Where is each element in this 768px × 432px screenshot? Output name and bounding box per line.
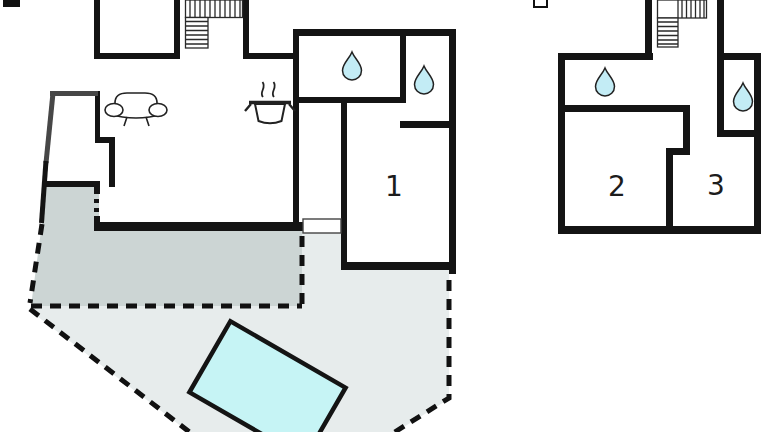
floorplan-canvas: 1 2 3	[0, 0, 768, 432]
pot-body	[255, 104, 285, 123]
water-drop-icon	[415, 66, 434, 94]
water-drop-icon	[734, 83, 753, 111]
sofa-arm-left	[105, 104, 123, 117]
room-label-3: 3	[707, 169, 725, 202]
staircase-icon	[186, 0, 243, 48]
cropped-marker-fragment	[3, 0, 20, 7]
entrance-slanted-wall	[46, 93, 53, 163]
sofa-icon	[105, 93, 167, 126]
window	[303, 219, 341, 233]
terrace-area	[31, 186, 302, 306]
room-label-1: 1	[385, 170, 403, 203]
stair-upper-flight	[186, 0, 243, 18]
sofa-arm-right	[149, 104, 167, 117]
floorplan-drawing: 1 2 3	[0, 0, 768, 432]
water-drop-icon	[596, 68, 615, 96]
steam-line	[273, 82, 275, 97]
water-drop-icon	[343, 52, 362, 80]
entrance-wall	[50, 91, 98, 96]
steam-line	[262, 82, 264, 97]
staircase-icon	[658, 0, 707, 47]
cooking-pot-icon	[245, 82, 295, 123]
room-label-2: 2	[608, 170, 626, 203]
cropped-square-marker	[534, 0, 547, 7]
